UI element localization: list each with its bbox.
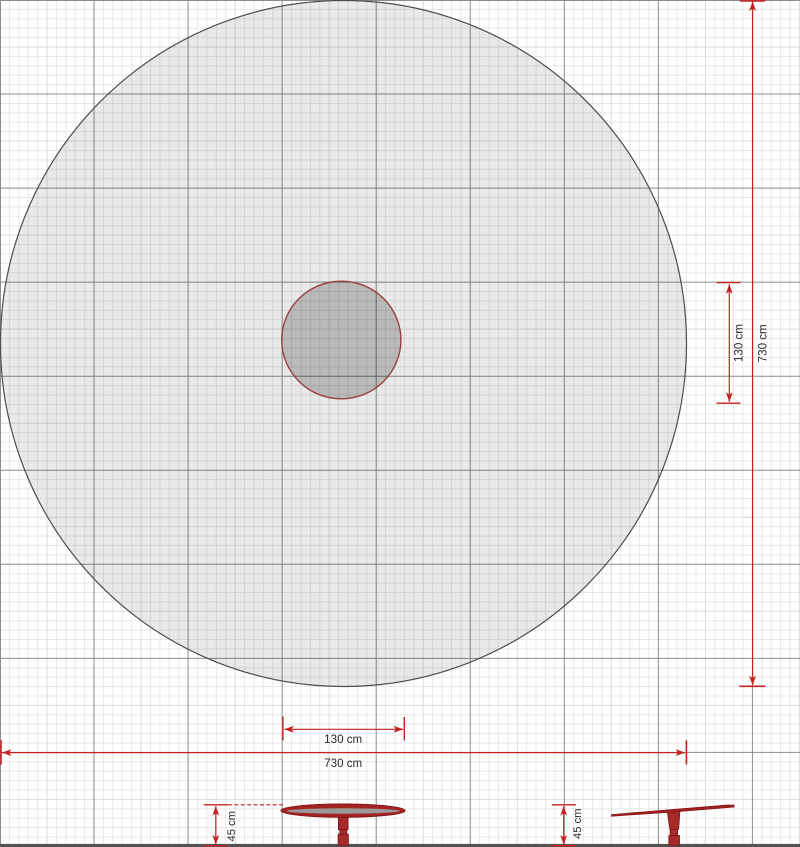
- svg-text:130 cm: 130 cm: [733, 324, 746, 362]
- svg-text:730 cm: 730 cm: [757, 324, 770, 362]
- svg-text:130 cm: 130 cm: [324, 733, 362, 746]
- svg-text:45 cm: 45 cm: [572, 809, 584, 839]
- svg-text:45 cm: 45 cm: [226, 811, 238, 841]
- svg-text:730 cm: 730 cm: [324, 757, 362, 770]
